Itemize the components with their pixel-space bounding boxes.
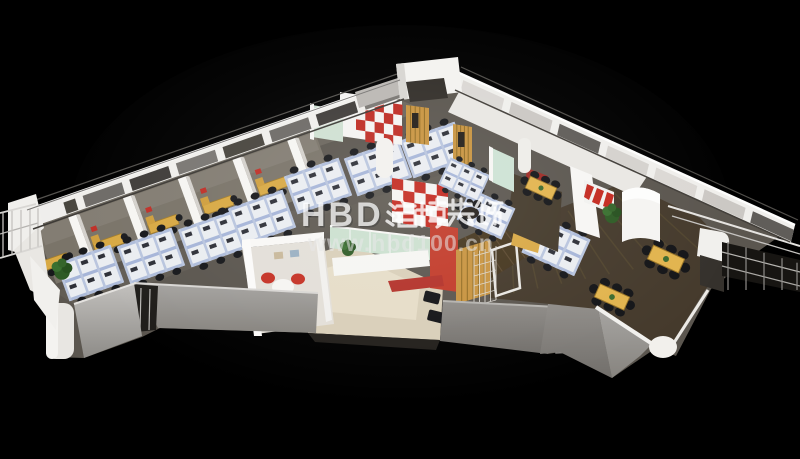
svg-text:HBD: HBD	[301, 196, 384, 234]
svg-text:www.hbd100.cn: www.hbd100.cn	[307, 230, 494, 256]
